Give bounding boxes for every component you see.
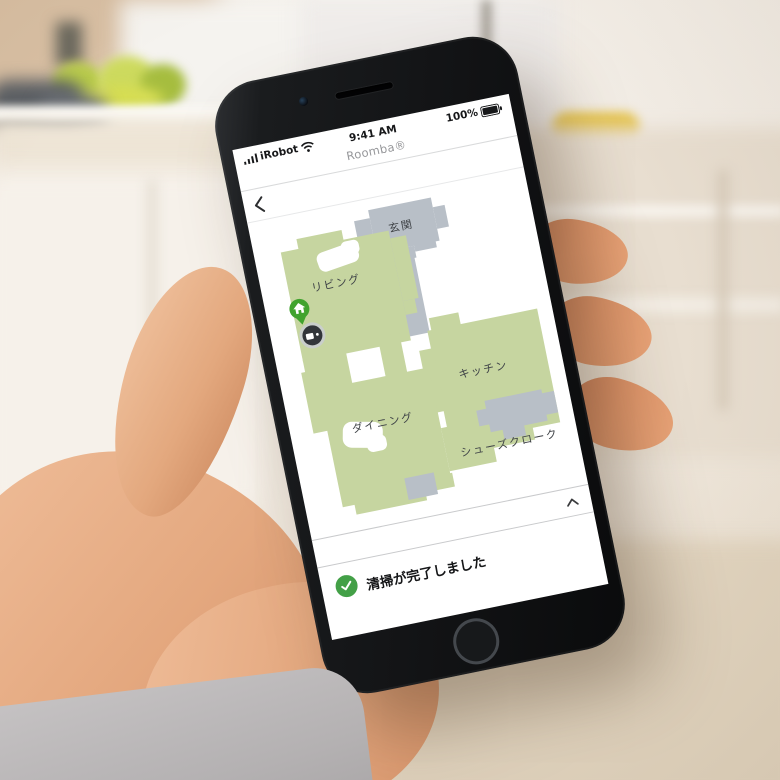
expand-sheet-button[interactable] [558, 490, 582, 514]
chevron-left-icon [252, 195, 266, 215]
earpiece-speaker [335, 82, 393, 99]
chevron-up-icon [564, 496, 580, 508]
clean-map: 玄関 リビング キッチン ダイニング シューズクローク [258, 178, 577, 525]
battery-percent: 100% [445, 107, 479, 125]
cellular-signal-icon [243, 152, 259, 165]
scene: iRobot 9:41 AM 100% [0, 0, 780, 780]
back-button[interactable] [252, 188, 286, 217]
wifi-icon [300, 141, 315, 153]
check-circle-icon [334, 573, 360, 599]
battery-icon [480, 102, 504, 117]
cleaning-status-text: 清掃が完了しました [364, 547, 488, 594]
home-button[interactable] [449, 614, 503, 668]
front-camera-icon [298, 96, 309, 107]
roomba-robot-icon [297, 319, 329, 351]
